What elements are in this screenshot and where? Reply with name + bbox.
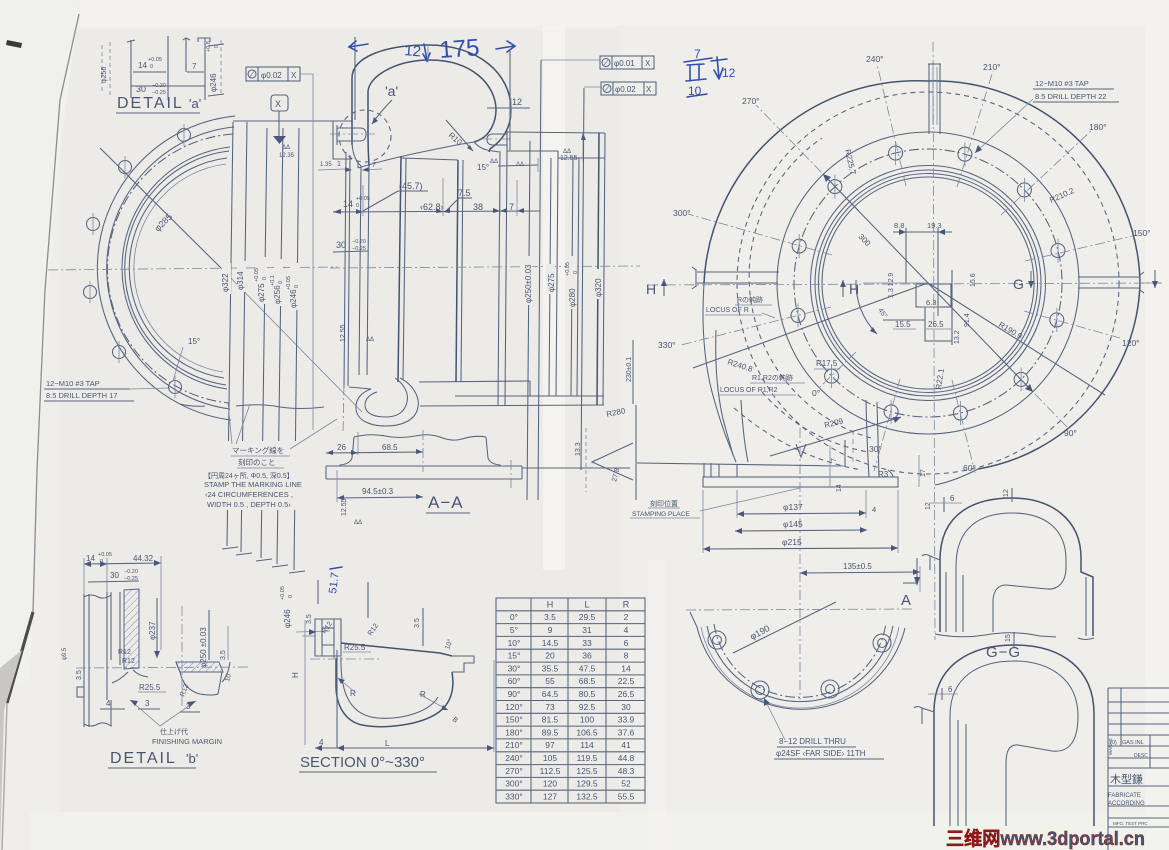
svg-text:330°: 330° xyxy=(658,340,676,350)
svg-text:94.5±0.3: 94.5±0.3 xyxy=(362,487,394,496)
svg-text:135±0.5: 135±0.5 xyxy=(843,562,872,571)
svg-text:木型鎌: 木型鎌 xyxy=(1110,772,1143,786)
svg-text:φ9.5: φ9.5 xyxy=(62,647,68,660)
svg-text:120°: 120° xyxy=(505,702,523,712)
svg-text:+0.05: +0.05 xyxy=(98,552,112,558)
svg-text:91.4: 91.4 xyxy=(964,313,971,327)
svg-text:35.5: 35.5 xyxy=(542,663,559,673)
svg-text:89.5: 89.5 xyxy=(542,727,559,737)
svg-text:1.35: 1.35 xyxy=(320,162,332,168)
svg-text:G: G xyxy=(1013,276,1024,292)
svg-text:φ322: φ322 xyxy=(221,273,230,292)
svg-text:R: R xyxy=(623,599,630,609)
svg-text:12: 12 xyxy=(1003,489,1010,497)
svg-text:X: X xyxy=(291,71,297,80)
svg-text:22.5: 22.5 xyxy=(618,676,635,686)
svg-text:(45.7): (45.7) xyxy=(399,181,423,191)
svg-text:17: 17 xyxy=(920,469,927,477)
svg-text:175: 175 xyxy=(439,34,481,64)
svg-text:120: 120 xyxy=(543,779,557,789)
svg-text:150°: 150° xyxy=(505,715,523,725)
svg-text:φ256: φ256 xyxy=(273,285,282,304)
svg-text:R12: R12 xyxy=(122,658,135,665)
svg-text:26: 26 xyxy=(337,443,346,452)
svg-text:300°: 300° xyxy=(673,208,691,218)
svg-text:φ246: φ246 xyxy=(283,609,292,628)
svg-text:0: 0 xyxy=(262,277,268,280)
svg-text:31: 31 xyxy=(582,625,592,635)
svg-text:φ275: φ275 xyxy=(257,283,266,302)
svg-text:13.2: 13.2 xyxy=(954,330,961,344)
svg-text:30°: 30° xyxy=(869,444,882,454)
svg-text:L: L xyxy=(584,599,589,609)
svg-text:14: 14 xyxy=(138,61,147,70)
svg-text:−0.20: −0.20 xyxy=(124,569,138,575)
svg-text:φ246: φ246 xyxy=(209,73,218,92)
svg-text:ACCORDING: ACCORDING xyxy=(1108,801,1145,807)
svg-text:0: 0 xyxy=(294,285,300,288)
svg-text:Rの軘跡: Rの軘跡 xyxy=(737,295,763,304)
svg-text:R25.5: R25.5 xyxy=(344,643,366,652)
svg-text:92.5: 92.5 xyxy=(579,702,596,712)
svg-text:100: 100 xyxy=(580,715,594,725)
svg-text:20: 20 xyxy=(545,651,555,661)
svg-text:15°: 15° xyxy=(508,651,521,661)
svg-text:FINISHING MARGIN: FINISHING MARGIN xyxy=(152,737,222,746)
svg-text:80.5: 80.5 xyxy=(579,689,596,699)
svg-text:‹24 CIRCUMFERENCES ,: ‹24 CIRCUMFERENCES , xyxy=(205,490,293,499)
svg-text:29.5: 29.5 xyxy=(579,612,596,622)
svg-text:R25.5: R25.5 xyxy=(139,683,161,692)
svg-text:30°: 30° xyxy=(508,663,521,673)
svg-text:3.5: 3.5 xyxy=(544,612,556,622)
svg-text:105: 105 xyxy=(543,753,557,763)
svg-text:0: 0 xyxy=(288,595,294,598)
svg-text:H: H xyxy=(291,672,300,678)
svg-text:4: 4 xyxy=(872,505,876,514)
svg-text:90°: 90° xyxy=(508,689,521,699)
svg-text:5°: 5° xyxy=(510,625,518,635)
svg-text:7: 7 xyxy=(831,458,838,462)
svg-text:4: 4 xyxy=(624,625,629,635)
svg-text:三维网www.3dportal.cn: 三维网www.3dportal.cn xyxy=(946,827,1145,850)
svg-text:φ237: φ237 xyxy=(148,621,157,640)
svg-text:30: 30 xyxy=(621,702,631,712)
svg-text:33: 33 xyxy=(582,638,592,648)
svg-text:MFG. TEST PRC: MFG. TEST PRC xyxy=(1113,821,1148,826)
svg-text:119.5: 119.5 xyxy=(577,753,598,763)
svg-text:12.35: 12.35 xyxy=(279,153,295,159)
svg-text:X: X xyxy=(275,99,281,109)
svg-text:68.5: 68.5 xyxy=(382,443,398,452)
svg-text:+0.05: +0.05 xyxy=(254,268,260,282)
svg-text:97: 97 xyxy=(545,740,555,750)
svg-text:LOCUS OF R1,R2: LOCUS OF R1,R2 xyxy=(720,387,778,394)
svg-text:180°: 180° xyxy=(1089,122,1107,132)
svg-text:36: 36 xyxy=(582,651,592,661)
svg-text:'a': 'a' xyxy=(385,83,398,99)
svg-text:60°: 60° xyxy=(508,676,521,686)
svg-text:φ215: φ215 xyxy=(782,537,802,547)
svg-text:33.9: 33.9 xyxy=(618,715,635,725)
svg-text:8.5 DRILL DEPTH 22: 8.5 DRILL DEPTH 22 xyxy=(1035,92,1106,101)
svg-text:0°: 0° xyxy=(812,388,820,398)
svg-text:ΔΔ: ΔΔ xyxy=(354,520,362,526)
svg-text:φ256: φ256 xyxy=(101,67,108,83)
svg-text:STAMPING PLACE: STAMPING PLACE xyxy=(632,511,690,518)
svg-text:14: 14 xyxy=(621,663,631,673)
svg-text:48.3: 48.3 xyxy=(618,766,635,776)
svg-text:ΔΔ: ΔΔ xyxy=(490,159,498,165)
svg-text:47.5: 47.5 xyxy=(579,663,596,673)
svg-text:H: H xyxy=(849,281,859,297)
svg-text:刻印のこと: 刻印のこと xyxy=(238,457,276,467)
svg-text:φ0.02: φ0.02 xyxy=(261,71,282,80)
svg-text:DETAIL: DETAIL xyxy=(117,95,184,112)
svg-text:120°: 120° xyxy=(1122,338,1140,348)
svg-text:300°: 300° xyxy=(505,779,523,789)
svg-text:26.5: 26.5 xyxy=(928,320,944,329)
svg-text:15°: 15° xyxy=(477,163,489,172)
svg-text:44.32: 44.32 xyxy=(133,554,154,563)
svg-text:7: 7 xyxy=(192,62,197,71)
svg-text:60°: 60° xyxy=(963,463,976,473)
svg-text:14.5: 14.5 xyxy=(542,638,559,648)
svg-text:STAMP THE MARKING LINE: STAMP THE MARKING LINE xyxy=(204,480,302,489)
svg-text:0: 0 xyxy=(278,281,284,284)
svg-text:H: H xyxy=(547,599,554,609)
svg-text:12−M10 #3 TAP: 12−M10 #3 TAP xyxy=(46,379,100,388)
svg-text:8.5 DRILL DEPTH 17: 8.5 DRILL DEPTH 17 xyxy=(46,391,117,400)
svg-text:3: 3 xyxy=(145,699,150,708)
svg-text:φ250 ±0.03: φ250 ±0.03 xyxy=(199,627,208,668)
svg-text:L: L xyxy=(385,739,390,748)
svg-text:210°: 210° xyxy=(983,62,1001,72)
svg-text:φ280: φ280 xyxy=(568,288,577,307)
svg-text:12−M10 #3 TAP: 12−M10 #3 TAP xyxy=(1035,79,1089,88)
svg-text:7: 7 xyxy=(372,162,376,169)
svg-text:55: 55 xyxy=(545,676,555,686)
svg-text:φ320: φ320 xyxy=(594,278,603,297)
svg-text:φ246: φ246 xyxy=(289,289,298,308)
svg-text:R3: R3 xyxy=(878,470,889,479)
svg-text:3.5: 3.5 xyxy=(76,670,83,680)
svg-text:125.5: 125.5 xyxy=(576,766,598,776)
svg-text:φ250±0.03: φ250±0.03 xyxy=(524,264,533,303)
svg-text:8−12 DRILL THRU: 8−12 DRILL THRU xyxy=(779,737,846,746)
svg-text:ΔΔ: ΔΔ xyxy=(282,145,290,151)
svg-text:6: 6 xyxy=(948,685,953,694)
svg-text:90°: 90° xyxy=(1064,428,1077,438)
svg-text:129.5: 129.5 xyxy=(576,779,598,789)
svg-text:132.5: 132.5 xyxy=(576,792,598,802)
svg-text:12: 12 xyxy=(722,66,736,80)
svg-text:+0.05: +0.05 xyxy=(565,262,571,276)
svg-text:10°: 10° xyxy=(508,638,521,648)
svg-text:WARNS: WARNS xyxy=(1108,738,1113,755)
svg-text:+0.1: +0.1 xyxy=(270,275,276,286)
svg-text:X: X xyxy=(645,59,651,68)
svg-text:330°: 330° xyxy=(505,792,523,802)
svg-text:114: 114 xyxy=(580,740,594,750)
svg-text:15: 15 xyxy=(1005,634,1012,642)
svg-text:30: 30 xyxy=(110,571,119,580)
svg-text:R12: R12 xyxy=(118,649,131,656)
svg-text:12: 12 xyxy=(404,42,422,60)
svg-text:3.5: 3.5 xyxy=(306,614,313,624)
svg-text:R17.5: R17.5 xyxy=(816,359,838,368)
svg-text:14: 14 xyxy=(343,199,353,209)
svg-text:7: 7 xyxy=(509,202,514,212)
svg-text:0: 0 xyxy=(573,271,579,274)
svg-text:1: 1 xyxy=(337,161,341,168)
svg-text:6: 6 xyxy=(950,494,955,503)
svg-text:52: 52 xyxy=(621,779,631,789)
svg-text:【円周24ヶ所, Φ0.5, 深0.5】: 【円周24ヶ所, Φ0.5, 深0.5】 xyxy=(204,471,294,480)
svg-text:+0.8: +0.8 xyxy=(206,41,212,52)
svg-text:LOCUS OF R: LOCUS OF R xyxy=(706,307,749,314)
svg-text:0: 0 xyxy=(150,64,153,70)
svg-text:37.6: 37.6 xyxy=(618,727,635,737)
svg-text:1.3 12.9: 1.3 12.9 xyxy=(888,273,895,298)
svg-text:240°: 240° xyxy=(505,753,523,763)
svg-text:8.8: 8.8 xyxy=(894,221,904,230)
svg-text:73: 73 xyxy=(545,702,555,712)
svg-text:15.5: 15.5 xyxy=(895,320,911,329)
svg-text:4: 4 xyxy=(106,699,111,708)
svg-text:7.5: 7.5 xyxy=(458,188,471,198)
svg-text:A−A: A−A xyxy=(428,493,464,512)
svg-text:41: 41 xyxy=(621,740,631,750)
svg-text:X: X xyxy=(646,85,652,94)
svg-text:'b': 'b' xyxy=(186,751,198,766)
svg-text:44.8: 44.8 xyxy=(618,753,635,763)
svg-text:30: 30 xyxy=(336,240,346,250)
svg-text:81.5: 81.5 xyxy=(542,715,559,725)
svg-text:230±0.1: 230±0.1 xyxy=(626,357,633,382)
svg-text:68.5: 68.5 xyxy=(579,676,596,686)
svg-text:12.55: 12.55 xyxy=(341,498,348,516)
svg-text:A: A xyxy=(901,592,911,609)
svg-text:150°: 150° xyxy=(1133,228,1151,238)
svg-text:8: 8 xyxy=(624,651,629,661)
svg-text:14: 14 xyxy=(836,484,843,492)
svg-text:210°: 210° xyxy=(505,740,523,750)
svg-text:112.5: 112.5 xyxy=(540,766,561,776)
svg-text:12.55: 12.55 xyxy=(560,155,578,162)
svg-text:7: 7 xyxy=(694,47,701,61)
svg-text:マーキング線を: マーキング線を xyxy=(232,445,284,455)
svg-text:270°: 270° xyxy=(505,766,523,776)
svg-text:φ0.01: φ0.01 xyxy=(614,59,635,68)
svg-text:127: 127 xyxy=(543,792,557,802)
svg-text:3.5: 3.5 xyxy=(414,618,421,628)
svg-text:DESC: DESC xyxy=(1134,753,1148,759)
svg-text:SECTION 0°~330°: SECTION 0°~330° xyxy=(300,754,425,771)
svg-text:GAS INL: GAS INL xyxy=(1122,740,1144,746)
svg-text:0: 0 xyxy=(356,203,359,209)
svg-text:6: 6 xyxy=(624,638,629,648)
svg-text:9: 9 xyxy=(548,625,553,635)
svg-text:仕上げ代: 仕上げ代 xyxy=(160,727,188,736)
svg-text:+0.05: +0.05 xyxy=(148,57,162,63)
svg-text:270°: 270° xyxy=(742,96,760,106)
svg-text:12.55: 12.55 xyxy=(340,324,347,342)
svg-text:−0.20: −0.20 xyxy=(352,239,366,245)
svg-text:13.3: 13.3 xyxy=(575,442,582,456)
svg-text:ΔΔ: ΔΔ xyxy=(366,337,374,343)
svg-text:15°: 15° xyxy=(188,337,200,346)
svg-text:180°: 180° xyxy=(505,727,523,737)
svg-text:φ275: φ275 xyxy=(547,273,556,292)
svg-text:55.5: 55.5 xyxy=(618,792,635,802)
svg-text:+0.05: +0.05 xyxy=(280,586,286,600)
svg-text:240°: 240° xyxy=(866,54,884,64)
svg-text:WIDTH 0.5 , DEPTH 0.5›: WIDTH 0.5 , DEPTH 0.5› xyxy=(207,500,291,509)
svg-text:2: 2 xyxy=(624,612,629,622)
svg-text:19.3: 19.3 xyxy=(927,221,942,230)
svg-text:0°: 0° xyxy=(510,612,518,622)
svg-text:3.5: 3.5 xyxy=(220,650,227,660)
svg-text:DETAIL: DETAIL xyxy=(110,750,177,767)
svg-text:38: 38 xyxy=(473,202,483,212)
svg-text:64.5: 64.5 xyxy=(542,689,559,699)
svg-text:R1,R2の軘跡: R1,R2の軘跡 xyxy=(752,373,793,382)
svg-text:φ0.02: φ0.02 xyxy=(615,85,636,94)
svg-text:φ24SF ‹FAR SIDE› 11TH: φ24SF ‹FAR SIDE› 11TH xyxy=(776,749,866,758)
svg-text:12: 12 xyxy=(512,97,522,107)
svg-text:H: H xyxy=(646,281,656,297)
svg-text:刻印位置: 刻印位置 xyxy=(650,499,678,508)
svg-text:+0.05: +0.05 xyxy=(286,276,292,290)
svg-text:106.5: 106.5 xyxy=(576,727,598,737)
svg-text:FABRICATE: FABRICATE xyxy=(1108,793,1141,799)
svg-text:6.3: 6.3 xyxy=(926,298,936,307)
svg-text:'a': 'a' xyxy=(189,96,201,111)
svg-text:φ314: φ314 xyxy=(236,271,245,290)
svg-text:15.6: 15.6 xyxy=(970,273,977,287)
svg-text:26.5: 26.5 xyxy=(618,689,635,699)
